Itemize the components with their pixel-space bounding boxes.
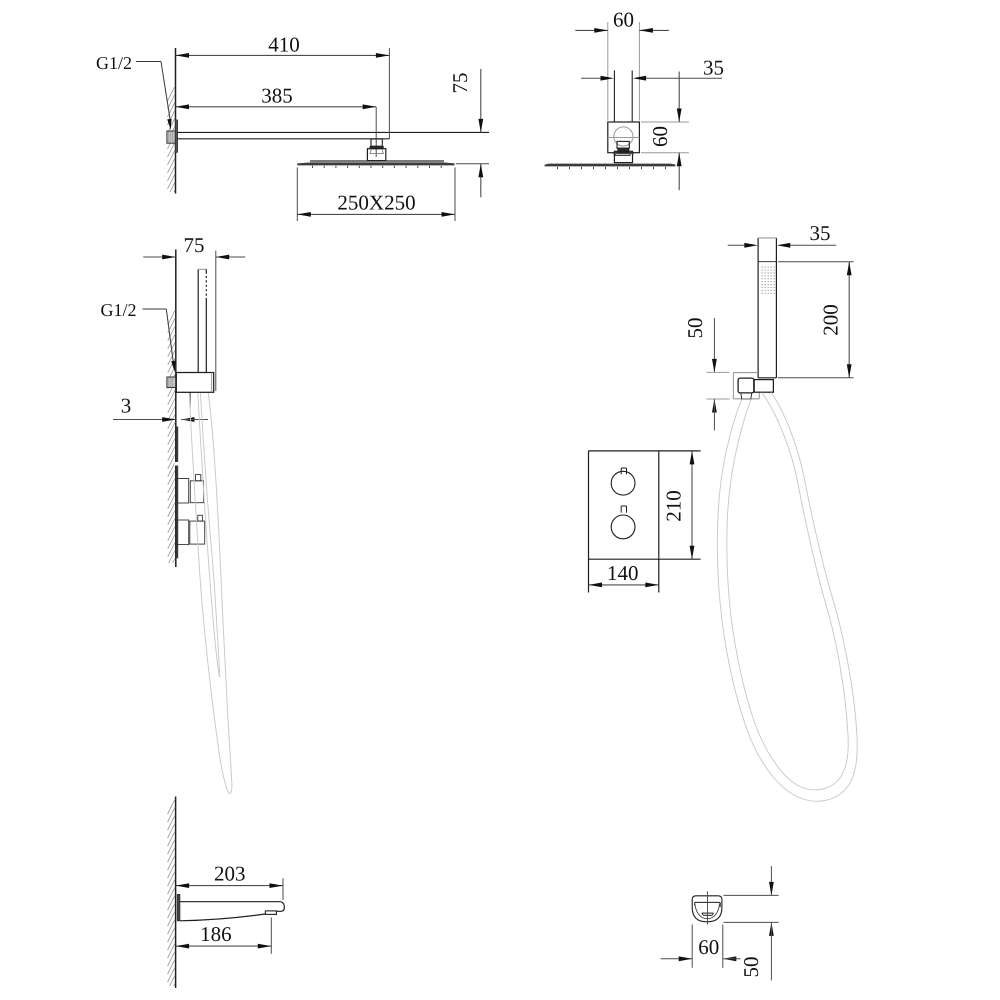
svg-text:50: 50 xyxy=(739,957,763,978)
svg-text:186: 186 xyxy=(200,922,232,946)
svg-text:385: 385 xyxy=(261,84,293,108)
svg-text:35: 35 xyxy=(703,56,724,80)
svg-text:203: 203 xyxy=(214,862,246,886)
svg-text:410: 410 xyxy=(268,33,300,57)
svg-text:140: 140 xyxy=(607,561,639,585)
svg-text:50: 50 xyxy=(683,318,707,339)
svg-text:60: 60 xyxy=(648,126,672,147)
svg-text:210: 210 xyxy=(662,490,686,522)
svg-text:60: 60 xyxy=(613,8,634,32)
svg-text:35: 35 xyxy=(810,221,831,245)
svg-text:75: 75 xyxy=(184,233,205,257)
svg-text:3: 3 xyxy=(121,394,132,418)
svg-text:200: 200 xyxy=(819,304,843,336)
svg-text:75: 75 xyxy=(448,73,472,94)
svg-text:60: 60 xyxy=(698,935,719,959)
svg-text:G1/2: G1/2 xyxy=(101,300,137,320)
svg-text:250X250: 250X250 xyxy=(337,191,415,215)
svg-text:G1/2: G1/2 xyxy=(96,53,132,73)
